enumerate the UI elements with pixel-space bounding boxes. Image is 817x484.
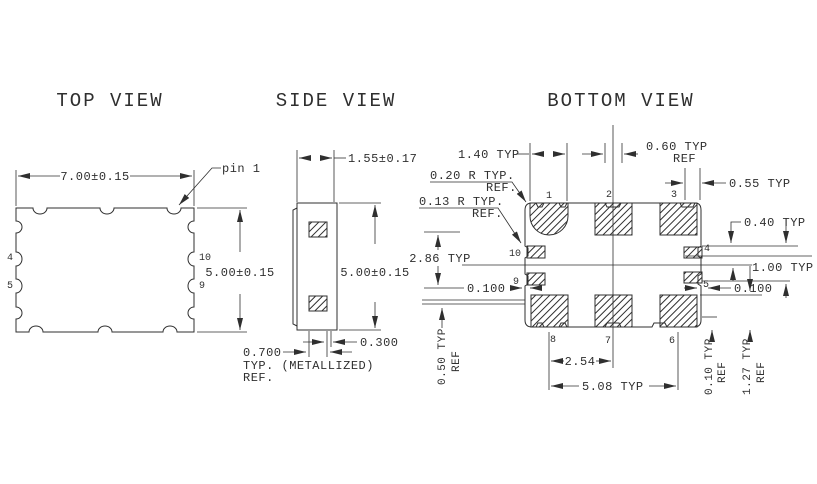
pad-3: [660, 203, 697, 235]
bottom-view: BOTTOM VIEW 1 2 3 4 5 6 7 8 9 10: [409, 90, 813, 395]
span-dim: 5.08 TYP: [582, 380, 644, 394]
seal-ref: REF: [451, 351, 463, 372]
edge-right-dim: 0.100: [734, 282, 773, 296]
radius-outer-ref: REF.: [486, 181, 517, 195]
pad-inset-dim: 0.10 TYP: [704, 338, 716, 395]
pin-number-10: 10: [199, 253, 211, 264]
pad-6: [660, 295, 697, 327]
pin-number-9: 9: [199, 281, 205, 292]
edge-left-dim: 0.100: [467, 282, 506, 296]
top-width-dim: 7.00±0.15: [60, 170, 129, 184]
pad-9: [527, 273, 545, 285]
pad-number-5: 5: [703, 280, 709, 291]
top-view-outline: [16, 208, 194, 332]
pin1-label: pin 1: [222, 162, 261, 176]
pad-number-9: 9: [513, 277, 519, 288]
metallized-ref: REF.: [243, 371, 274, 385]
pad-width-dim: 1.40 TYP: [458, 148, 520, 162]
side-view: SIDE VIEW 1.55±0.17 5.00±0.15 0.300 0.70…: [243, 90, 417, 385]
pad-number-8: 8: [550, 335, 556, 346]
top-view-title: TOP VIEW: [56, 90, 163, 112]
side-pad-width-dim: 0.700: [243, 346, 282, 360]
side-height-dim: 5.00±0.15: [340, 266, 409, 280]
notch-corner-dim: 0.55 TYP: [729, 177, 791, 191]
pad-2: [595, 203, 632, 235]
pad-number-10: 10: [509, 249, 521, 260]
side-view-title: SIDE VIEW: [276, 90, 397, 112]
drawing-sheet: TOP VIEW 7.00±0.15 pin 1 5.00±0.15 4 5 1…: [0, 0, 817, 484]
radius-inner-leader-line: [419, 208, 521, 243]
pin-number-5: 5: [7, 281, 13, 292]
bottom-view-title: BOTTOM VIEW: [547, 90, 694, 112]
pad-7: [595, 295, 632, 327]
top-height-dim: 5.00±0.15: [205, 266, 274, 280]
pin1-leader-line: [179, 168, 221, 205]
pad-length-ref: REF: [756, 362, 768, 383]
side-pitch-dim: 1.00 TYP: [752, 261, 814, 275]
pad-inset-ref: REF: [717, 362, 729, 383]
pad-8: [531, 295, 568, 327]
top-view: TOP VIEW 7.00±0.15 pin 1 5.00±0.15 4 5 1…: [7, 90, 275, 332]
notch-center-ref: REF: [673, 152, 696, 166]
dimension-line: [731, 222, 741, 243]
pin-number-4: 4: [7, 253, 13, 264]
side-view-lid-step: [293, 208, 297, 326]
pad-number-6: 6: [669, 336, 675, 347]
pad-number-2: 2: [606, 190, 612, 201]
package-drawing: TOP VIEW 7.00±0.15 pin 1 5.00±0.15 4 5 1…: [0, 0, 817, 484]
radius-inner-ref: REF.: [472, 207, 503, 221]
side-metallized-pad-top: [309, 222, 327, 237]
side-edge-gap-dim: 0.300: [360, 336, 399, 350]
pad-1: [530, 203, 568, 235]
side-span-dim: 2.86 TYP: [409, 252, 471, 266]
pad-length-dim: 1.27 TYP: [742, 338, 754, 395]
pitch-dim: 2.54: [565, 355, 596, 369]
pad-number-3: 3: [671, 190, 677, 201]
pad-number-1: 1: [546, 191, 552, 202]
pad-5: [684, 272, 702, 283]
seal-dim: 0.50 TYP: [437, 328, 449, 385]
pad-number-7: 7: [605, 336, 611, 347]
pad-10: [527, 246, 545, 258]
top-offset-dim: 0.40 TYP: [744, 216, 806, 230]
side-thickness-dim: 1.55±0.17: [348, 152, 417, 166]
side-metallized-pad-bottom: [309, 296, 327, 311]
